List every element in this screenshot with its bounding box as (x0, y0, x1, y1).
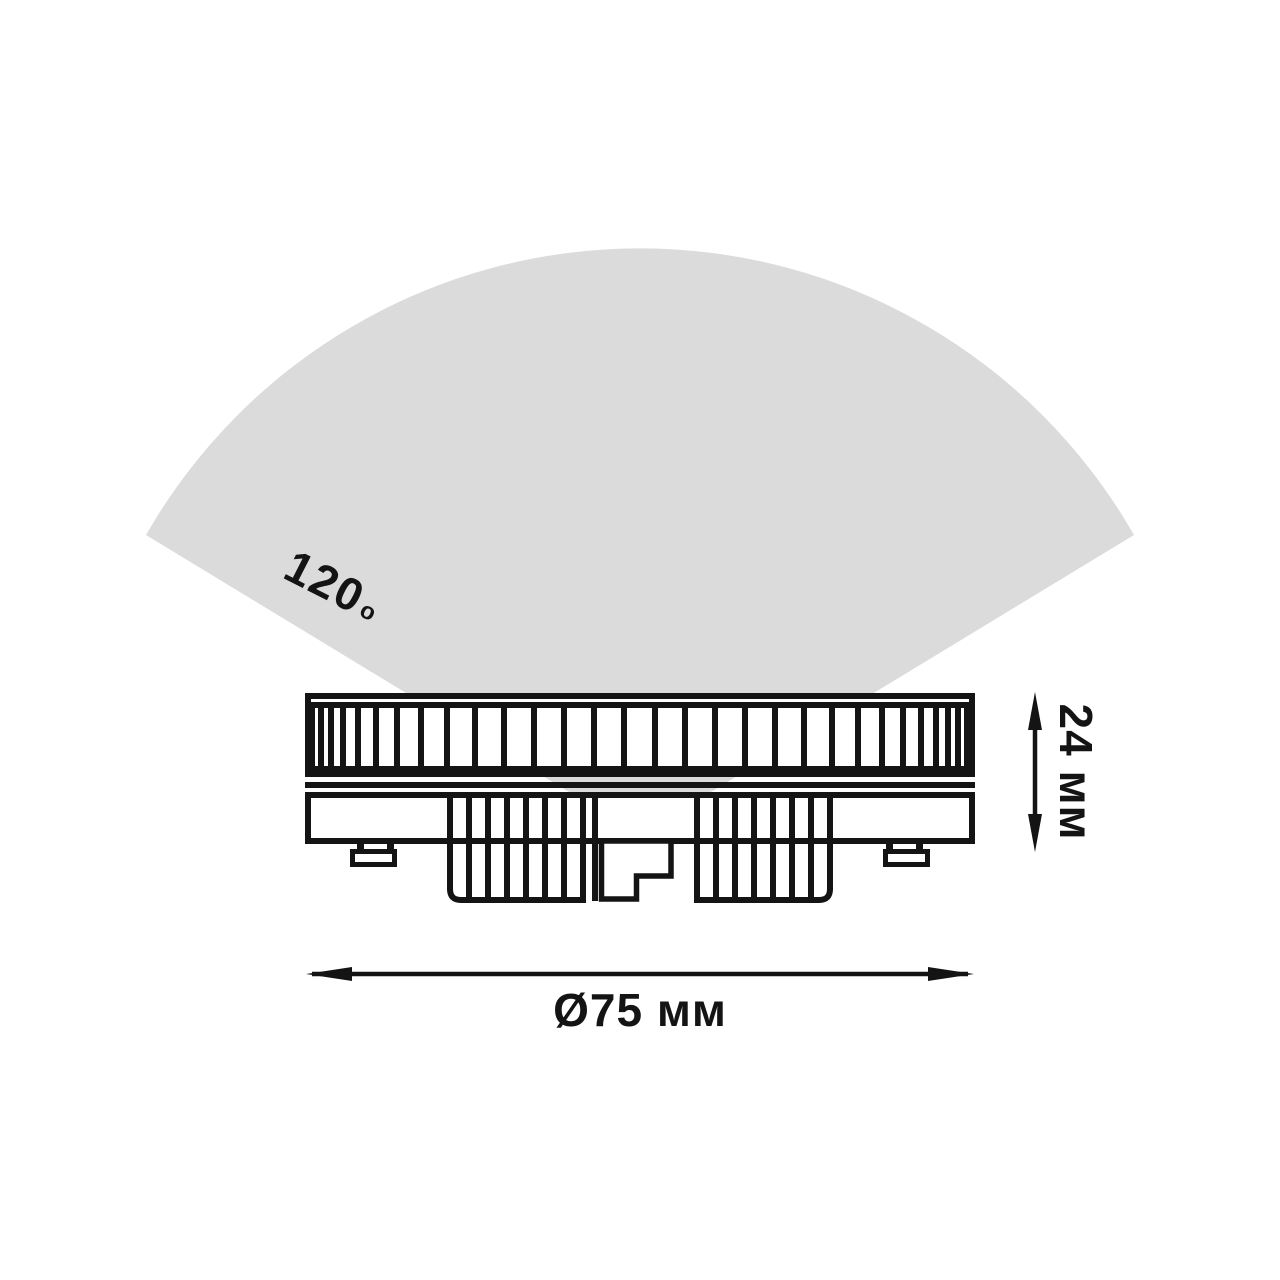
fin-slot (504, 795, 510, 900)
lamp-body (308, 795, 972, 841)
fin-slot (688, 708, 712, 766)
fin-slot (751, 795, 757, 900)
fin-slot (450, 708, 472, 766)
fin-slot (789, 795, 795, 900)
fin-slot (400, 708, 418, 766)
right-pin-stem-a (886, 840, 893, 853)
fin-slot (361, 708, 373, 766)
fin-slot (324, 708, 328, 766)
lamp-drawing (305, 696, 975, 901)
left-pin-stem-a (357, 840, 364, 853)
fin-slot (334, 708, 340, 766)
fin-slot (924, 708, 933, 766)
fin-slot (939, 708, 945, 766)
fin-slot (542, 795, 548, 900)
center-connector (602, 841, 672, 899)
fin-slot (466, 795, 472, 900)
right-pin-stem-b (916, 840, 923, 853)
fin-slot (523, 795, 529, 900)
fin-slot (835, 708, 855, 766)
left-pin-stem-b (387, 840, 394, 853)
right-pin-base (886, 852, 928, 865)
fin-slot (567, 708, 591, 766)
fin-slot (478, 708, 501, 766)
diameter-arrow-head-left (306, 967, 352, 981)
bottom-fins-right (697, 795, 830, 900)
fin-slot (770, 795, 776, 900)
diameter-arrow-head-right (928, 967, 974, 981)
fin-slot (713, 795, 719, 900)
fin-slot (807, 708, 829, 766)
fin-slot (627, 708, 652, 766)
diameter-arrow-shaft (312, 972, 968, 977)
fin-slot (951, 708, 955, 766)
fin-slot (424, 708, 444, 766)
height-dimension-arrow (1028, 692, 1042, 852)
fin-slot (778, 708, 801, 766)
left-extra-fin (592, 795, 598, 901)
fin-slot (808, 795, 814, 900)
diameter-dimension-arrow (306, 967, 974, 981)
fin-slot (379, 708, 394, 766)
fin-slot (658, 708, 682, 766)
separator-strip (305, 782, 975, 788)
fin-slot (597, 708, 621, 766)
diagram-canvas: 120o 24 мм Ø75 мм (0, 0, 1280, 1280)
fin-slot (537, 708, 561, 766)
fin-slot (718, 708, 742, 766)
fin-slot (507, 708, 531, 766)
height-arrow-head-top (1028, 692, 1042, 730)
heatsink-slots (315, 708, 964, 766)
fin-slot (315, 708, 318, 766)
fin-slot (732, 795, 738, 900)
height-dimension-label: 24 мм (1049, 703, 1103, 840)
diameter-dimension-label: Ø75 мм (553, 983, 727, 1037)
fin-slot (906, 708, 918, 766)
fin-slot (346, 708, 355, 766)
left-pin-base (353, 852, 395, 865)
fin-slot (561, 795, 567, 900)
lamp-dimension-diagram (0, 0, 1280, 1280)
heatsink-band (308, 696, 972, 774)
bottom-fins-left (450, 795, 598, 901)
fin-slot (748, 708, 772, 766)
height-arrow-head-bottom (1028, 814, 1042, 852)
fin-slot (961, 708, 964, 766)
fin-slot (485, 795, 491, 900)
fin-slot (861, 708, 879, 766)
fin-slot (885, 708, 900, 766)
